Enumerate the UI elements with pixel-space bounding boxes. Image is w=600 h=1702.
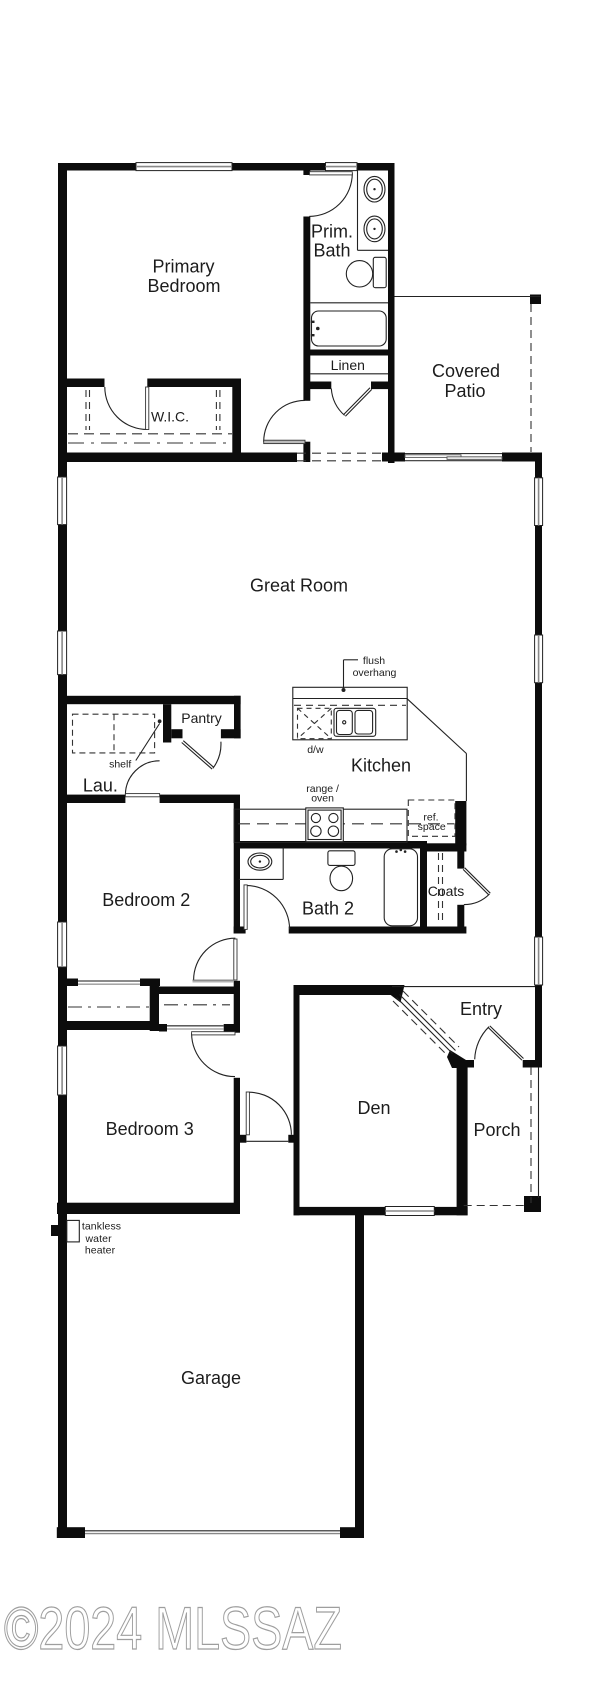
svg-text:flush: flush [363, 655, 385, 667]
svg-text:Patio: Patio [444, 381, 485, 401]
svg-text:oven: oven [311, 792, 334, 804]
svg-text:W.I.C.: W.I.C. [151, 409, 189, 425]
svg-text:Bedroom: Bedroom [147, 276, 220, 296]
svg-text:Entry: Entry [460, 999, 502, 1019]
svg-text:Kitchen: Kitchen [351, 756, 411, 776]
svg-text:Lau.: Lau. [83, 776, 118, 796]
svg-text:Garage: Garage [181, 1368, 241, 1388]
svg-text:space: space [418, 821, 446, 833]
svg-text:overhang: overhang [353, 667, 397, 679]
svg-text:Linen: Linen [331, 357, 365, 373]
svg-text:Coats: Coats [428, 883, 465, 899]
svg-text:Bath 2: Bath 2 [302, 899, 354, 919]
svg-text:Porch: Porch [473, 1120, 520, 1140]
svg-text:Bedroom 3: Bedroom 3 [106, 1119, 194, 1139]
svg-text:d/w: d/w [307, 744, 324, 756]
svg-text:tankless: tankless [82, 1221, 121, 1233]
svg-text:©2024 MLSSAZ: ©2024 MLSSAZ [4, 1595, 342, 1662]
svg-text:Bath: Bath [313, 241, 350, 261]
svg-text:Bedroom 2: Bedroom 2 [102, 890, 190, 910]
svg-text:Great Room: Great Room [250, 576, 348, 596]
svg-text:heater: heater [85, 1245, 116, 1257]
svg-text:Den: Den [357, 1098, 390, 1118]
svg-text:Covered: Covered [432, 361, 500, 381]
svg-text:Pantry: Pantry [181, 710, 221, 726]
svg-text:Prim.: Prim. [311, 222, 353, 242]
svg-text:Primary: Primary [153, 257, 215, 277]
svg-text:water: water [85, 1233, 113, 1245]
svg-text:shelf: shelf [109, 759, 131, 771]
